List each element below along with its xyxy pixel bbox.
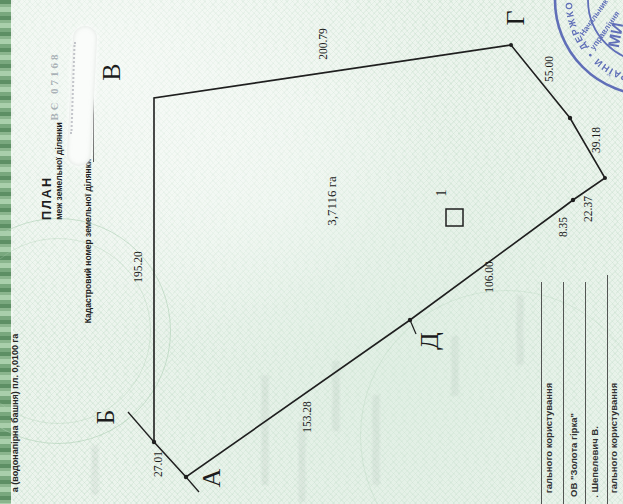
- edge-length-label: 195.20: [132, 251, 144, 283]
- vertex-leader-line: [128, 412, 154, 442]
- vertex-dot: [509, 43, 513, 47]
- vertex-dot: [184, 475, 188, 479]
- vertex-dot: [408, 318, 412, 322]
- vertex-leader-line: [410, 320, 416, 334]
- vertex-label-b: Б: [91, 410, 120, 425]
- vertex-label-g: Г: [501, 10, 530, 25]
- edge-length-label: 106.00: [483, 261, 495, 293]
- edge-length-label: 39.18: [590, 127, 602, 153]
- edge-length-label: 22.37: [582, 196, 594, 222]
- vertex-label-v: В: [97, 63, 126, 80]
- parcel-marker-square: [446, 209, 463, 226]
- vertex-label-d: Д: [415, 332, 444, 350]
- edge-length-label: 27.01: [152, 451, 164, 477]
- edge-length-label: 8.35: [557, 217, 569, 237]
- area-label: 3,7116 га: [324, 176, 339, 226]
- stamp-center-mark: МИ: [605, 21, 623, 48]
- scanned-land-plan-document: ПЛАН меж земельної ділянки Кадастровий н…: [0, 0, 623, 504]
- vertex-dot: [152, 440, 156, 444]
- edge-length-label: 200.79: [317, 28, 329, 60]
- parcel-number: 1: [434, 190, 449, 197]
- plan-drawing: 1 3,7116 га 200.79 55.00 39.18 22.37 8.3…: [0, 0, 623, 504]
- vertex-dot: [571, 198, 575, 202]
- vertex-dot: [568, 116, 572, 120]
- vertex-label-a: А: [197, 468, 226, 487]
- parcel-boundary-polygon: [154, 45, 605, 477]
- edge-length-label: 153.28: [301, 401, 313, 433]
- edge-length-label: 55.00: [543, 56, 555, 82]
- vertex-dot: [603, 176, 607, 180]
